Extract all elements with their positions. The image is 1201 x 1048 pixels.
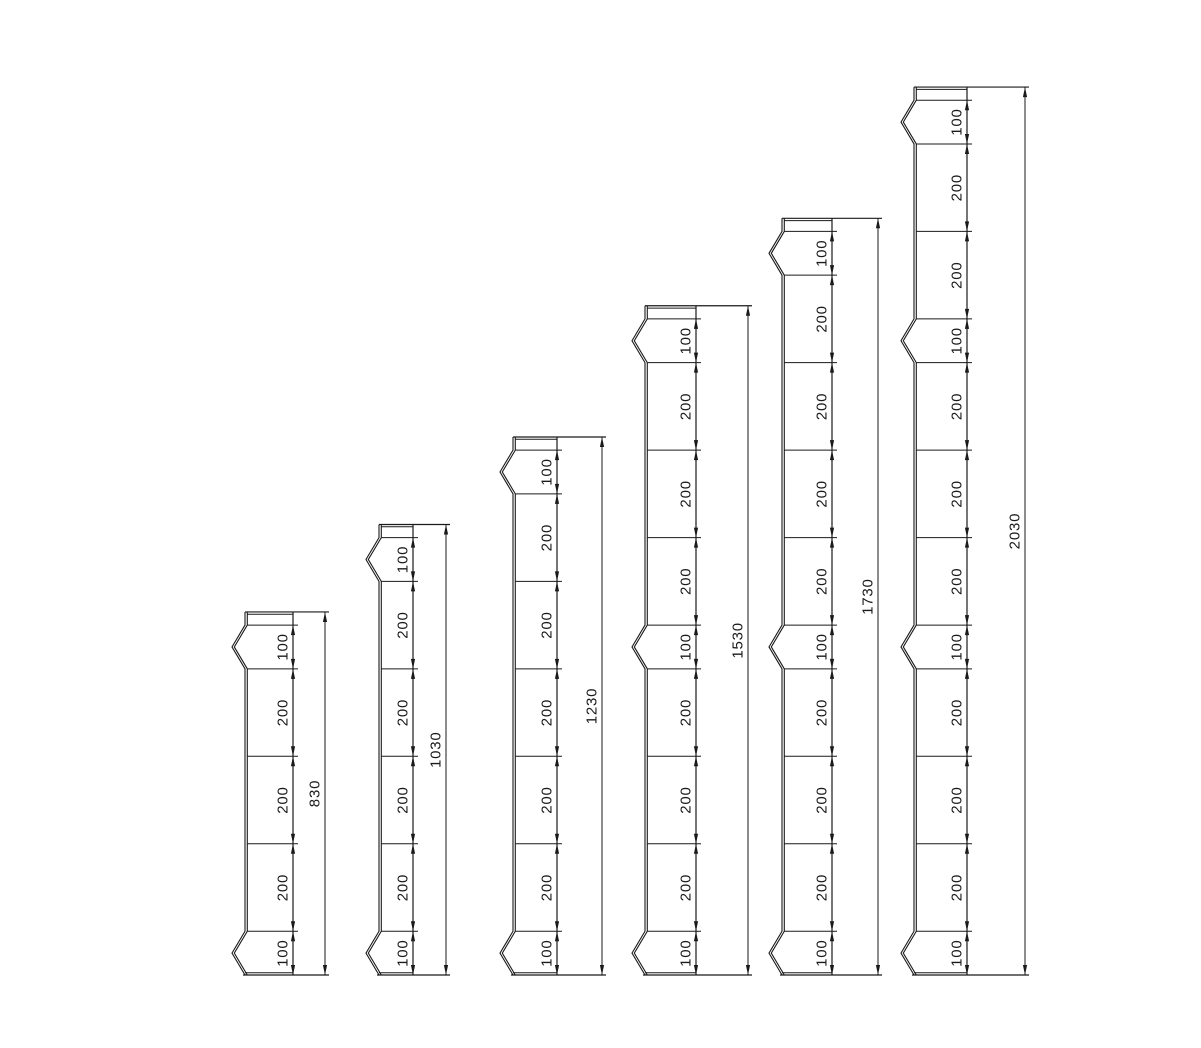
dimension-arrow [965, 615, 969, 625]
segment-dimension-label: 200 [394, 786, 411, 813]
post-1730: 1002002002002001002002002001001730 [769, 218, 882, 975]
dimension-arrow [444, 524, 448, 534]
dimension-arrow [694, 965, 698, 975]
post-left-edge [901, 87, 914, 975]
dimension-arrow [694, 353, 698, 363]
segment-dimension-label: 200 [948, 699, 965, 726]
segment-dimension-label: 100 [394, 546, 411, 573]
segment-dimension-label: 100 [677, 633, 694, 660]
dimension-arrow [555, 746, 559, 756]
dimension-arrow [291, 669, 295, 679]
dimension-arrow [830, 921, 834, 931]
dimension-arrow [694, 319, 698, 329]
dimension-arrow [555, 581, 559, 591]
segment-dimension-label: 200 [274, 786, 291, 813]
dimension-arrow [411, 538, 415, 548]
overall-dimension-label: 1030 [427, 731, 444, 768]
dimension-arrow [555, 834, 559, 844]
segment-dimension-label: 200 [948, 174, 965, 201]
dimension-arrow [323, 612, 327, 622]
dimension-arrow [411, 921, 415, 931]
dimension-arrow [291, 834, 295, 844]
dimension-arrow [411, 571, 415, 581]
segment-dimension-label: 200 [948, 786, 965, 813]
segment-dimension-label: 200 [813, 874, 830, 901]
dimension-arrow [291, 746, 295, 756]
dimension-arrow [746, 306, 750, 316]
post-left-edge [366, 524, 379, 975]
overall-dimension-label: 830 [306, 780, 323, 807]
dimension-arrow [555, 965, 559, 975]
post-left-edge [232, 612, 245, 975]
post-left-edge [500, 437, 513, 975]
dimension-arrow [600, 437, 604, 447]
segment-dimension-label: 100 [813, 939, 830, 966]
segment-dimension-label: 200 [538, 524, 555, 551]
segment-dimension-label: 100 [274, 939, 291, 966]
segment-dimension-label: 200 [394, 611, 411, 638]
dimension-arrow [830, 625, 834, 635]
dimension-arrow [694, 528, 698, 538]
dimension-arrow [965, 450, 969, 460]
segment-dimension-label: 100 [948, 939, 965, 966]
segment-dimension-label: 200 [394, 874, 411, 901]
dimension-arrow [830, 538, 834, 548]
segment-dimension-label: 200 [538, 786, 555, 813]
segment-dimension-label: 200 [677, 480, 694, 507]
dimension-arrow [830, 450, 834, 460]
dimension-arrow [965, 353, 969, 363]
segment-dimension-label: 200 [677, 786, 694, 813]
dimension-arrow [555, 659, 559, 669]
drawing-canvas: 1002002002001008301002002002002001001030… [0, 0, 1201, 1048]
dimension-arrow [411, 931, 415, 941]
overall-dimension-label: 1230 [583, 688, 600, 725]
dimension-arrow [555, 931, 559, 941]
segment-dimension-label: 100 [274, 633, 291, 660]
dimension-arrow [965, 659, 969, 669]
dimension-arrow [965, 100, 969, 110]
dimension-arrow [965, 440, 969, 450]
dimension-arrow [555, 571, 559, 581]
dimension-arrow [694, 756, 698, 766]
post-2030: 1002002001002002002001002002002001002030 [901, 87, 1029, 975]
dimension-arrow [965, 844, 969, 854]
dimension-arrow [694, 440, 698, 450]
dimension-arrow [830, 756, 834, 766]
post-1030: 1002002002002001001030 [366, 524, 450, 975]
dimension-arrow [830, 231, 834, 241]
segment-dimension-label: 100 [948, 108, 965, 135]
overall-dimension-label: 2030 [1006, 513, 1023, 550]
dimension-arrow [411, 756, 415, 766]
dimension-arrow [555, 844, 559, 854]
dimension-arrow [830, 440, 834, 450]
dimension-arrow [830, 353, 834, 363]
dimension-arrow [411, 844, 415, 854]
dimension-arrow [830, 659, 834, 669]
dimension-arrow [965, 669, 969, 679]
overall-dimension-label: 1730 [859, 578, 876, 615]
segment-dimension-label: 100 [538, 458, 555, 485]
dimension-arrow [291, 844, 295, 854]
dimension-arrow [965, 528, 969, 538]
segment-dimension-label: 200 [813, 699, 830, 726]
segment-dimension-label: 100 [813, 240, 830, 267]
dimension-arrow [830, 746, 834, 756]
dimension-arrow [694, 834, 698, 844]
dimension-arrow [965, 625, 969, 635]
dimension-arrow [830, 931, 834, 941]
segment-dimension-label: 100 [677, 327, 694, 354]
dimension-arrow [830, 834, 834, 844]
segment-dimension-label: 200 [948, 393, 965, 420]
segment-dimension-label: 200 [677, 568, 694, 595]
segment-dimension-label: 200 [677, 874, 694, 901]
segment-dimension-label: 200 [948, 874, 965, 901]
dimension-arrow [411, 834, 415, 844]
segment-dimension-label: 200 [538, 699, 555, 726]
dimension-arrow [694, 844, 698, 854]
dimension-arrow [694, 921, 698, 931]
overall-dimension-label: 1530 [729, 622, 746, 659]
dimension-arrow [555, 921, 559, 931]
segment-dimension-label: 200 [948, 568, 965, 595]
dimension-arrow [291, 921, 295, 931]
dimension-arrow [965, 746, 969, 756]
dimension-arrow [965, 921, 969, 931]
dimension-arrow [291, 625, 295, 635]
dimension-arrow [830, 615, 834, 625]
post-1230: 1002002002002002001001230 [500, 437, 606, 975]
segment-dimension-label: 200 [538, 874, 555, 901]
segment-dimension-label: 200 [948, 261, 965, 288]
dimension-arrow [323, 965, 327, 975]
segment-dimension-label: 100 [538, 939, 555, 966]
dimension-arrow [830, 844, 834, 854]
segment-dimension-label: 200 [813, 568, 830, 595]
technical-drawing: 1002002002001008301002002002002001001030… [0, 0, 1201, 1048]
dimension-arrow [1023, 87, 1027, 97]
dimension-arrow [411, 965, 415, 975]
dimension-arrow [411, 659, 415, 669]
segment-dimension-label: 100 [813, 633, 830, 660]
post-left-edge [769, 218, 782, 975]
dimension-arrow [830, 528, 834, 538]
dimension-arrow [291, 659, 295, 669]
post-1530: 1002002002001002002002001001530 [632, 306, 752, 975]
dimension-arrow [291, 931, 295, 941]
segment-dimension-label: 200 [538, 611, 555, 638]
dimension-arrow [965, 931, 969, 941]
dimension-arrow [694, 625, 698, 635]
dimension-arrow [830, 965, 834, 975]
dimension-arrow [411, 669, 415, 679]
dimension-arrow [555, 494, 559, 504]
segment-dimension-label: 200 [394, 699, 411, 726]
dimension-arrow [965, 363, 969, 373]
dimension-arrow [291, 756, 295, 766]
dimension-arrow [1023, 965, 1027, 975]
dimension-arrow [876, 218, 880, 228]
dimension-arrow [965, 221, 969, 231]
segment-dimension-label: 200 [677, 699, 694, 726]
segment-dimension-label: 100 [948, 327, 965, 354]
dimension-arrow [555, 669, 559, 679]
segment-dimension-label: 100 [948, 633, 965, 660]
dimension-arrow [830, 265, 834, 275]
dimension-arrow [965, 309, 969, 319]
dimension-arrow [694, 669, 698, 679]
segment-dimension-label: 200 [813, 393, 830, 420]
dimension-arrow [555, 484, 559, 494]
dimension-arrow [555, 756, 559, 766]
dimension-arrow [830, 363, 834, 373]
dimension-arrow [694, 931, 698, 941]
dimension-arrow [694, 538, 698, 548]
segment-dimension-label: 100 [677, 939, 694, 966]
dimension-arrow [876, 965, 880, 975]
dimension-arrow [965, 834, 969, 844]
dimension-arrow [291, 965, 295, 975]
dimension-arrow [965, 965, 969, 975]
dimension-arrow [600, 965, 604, 975]
segment-dimension-label: 200 [813, 480, 830, 507]
dimension-arrow [965, 319, 969, 329]
segment-dimension-label: 200 [813, 786, 830, 813]
dimension-arrow [965, 144, 969, 154]
dimension-arrow [694, 615, 698, 625]
dimension-arrow [694, 659, 698, 669]
dimension-arrow [965, 756, 969, 766]
dimension-arrow [694, 450, 698, 460]
dimension-arrow [830, 669, 834, 679]
dimension-arrow [830, 275, 834, 285]
dimension-arrow [555, 450, 559, 460]
segment-dimension-label: 100 [394, 939, 411, 966]
dimension-arrow [411, 581, 415, 591]
segment-dimension-label: 200 [274, 699, 291, 726]
dimension-arrow [965, 231, 969, 241]
post-830: 100200200200100830 [232, 612, 329, 975]
dimension-arrow [965, 538, 969, 548]
dimension-arrow [411, 746, 415, 756]
dimension-arrow [694, 363, 698, 373]
segment-dimension-label: 200 [274, 874, 291, 901]
segment-dimension-label: 200 [813, 305, 830, 332]
dimension-arrow [965, 134, 969, 144]
dimension-arrow [444, 965, 448, 975]
segment-dimension-label: 200 [948, 480, 965, 507]
dimension-arrow [746, 965, 750, 975]
segment-dimension-label: 200 [677, 393, 694, 420]
dimension-arrow [694, 746, 698, 756]
